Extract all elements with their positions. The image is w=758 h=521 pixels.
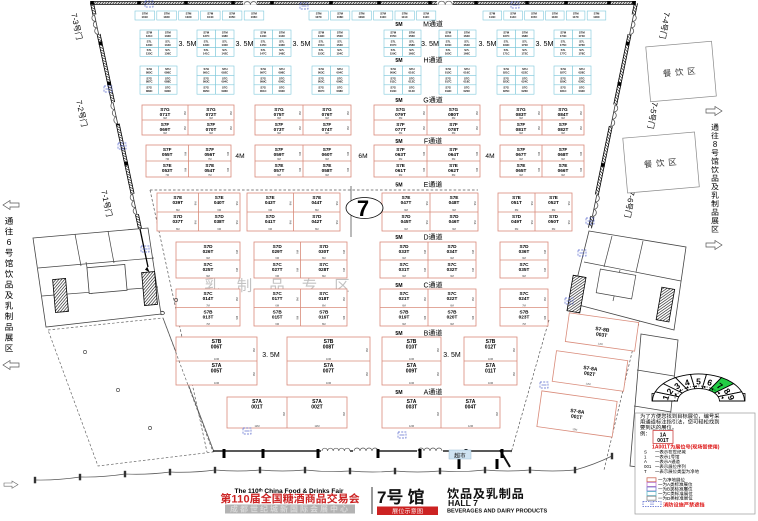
svg-text:9M: 9M xyxy=(537,152,541,156)
svg-text:M: M xyxy=(423,21,429,28)
svg-text:042T: 042T xyxy=(311,219,322,224)
svg-text:020C: 020C xyxy=(463,89,470,93)
svg-text:E: E xyxy=(424,182,429,189)
svg-text:9M: 9M xyxy=(183,126,187,130)
svg-text:10M: 10M xyxy=(326,357,331,361)
svg-text:3. 5M: 3. 5M xyxy=(479,39,497,48)
svg-text:6M: 6M xyxy=(325,157,329,161)
svg-text:6M: 6M xyxy=(325,116,329,120)
svg-text:6M: 6M xyxy=(561,131,565,135)
svg-text:017T: 017T xyxy=(272,296,283,301)
svg-text:6M: 6M xyxy=(402,274,406,278)
svg-text:022C: 022C xyxy=(521,70,528,74)
svg-text:5M: 5M xyxy=(395,390,402,396)
svg-text:007T: 007T xyxy=(323,369,334,375)
svg-text:9M: 9M xyxy=(346,168,350,172)
svg-text:067T: 067T xyxy=(516,152,527,157)
svg-text:142C: 142C xyxy=(221,52,228,56)
svg-text:12M: 12M xyxy=(585,382,591,387)
svg-text:094C: 094C xyxy=(221,80,228,84)
svg-text:9M: 9M xyxy=(365,348,369,352)
svg-text:113C: 113C xyxy=(489,15,496,19)
svg-text:9M: 9M xyxy=(226,152,230,156)
svg-text:013T: 013T xyxy=(203,315,214,320)
svg-text:A: A xyxy=(424,389,429,396)
svg-text:147C: 147C xyxy=(260,52,267,56)
svg-text:6M: 6M xyxy=(176,227,180,231)
svg-text:165C: 165C xyxy=(445,52,452,56)
svg-text:108C: 108C xyxy=(337,15,344,19)
svg-text:133C: 133C xyxy=(146,43,153,47)
svg-text:111C: 111C xyxy=(401,15,407,19)
svg-text:9M: 9M xyxy=(295,297,299,301)
svg-text:9M: 9M xyxy=(495,412,499,416)
svg-text:6: 6 xyxy=(7,237,12,247)
svg-text:002C: 002C xyxy=(278,89,285,93)
svg-text:6M: 6M xyxy=(277,131,281,135)
svg-text:9M: 9M xyxy=(342,316,346,320)
svg-text:022T: 022T xyxy=(447,296,458,301)
svg-text:018T: 018T xyxy=(318,296,329,301)
svg-text:087C: 087C xyxy=(146,80,153,84)
svg-text:062T: 062T xyxy=(448,168,459,173)
svg-text:9M: 9M xyxy=(543,268,547,272)
svg-text:044T: 044T xyxy=(311,200,322,205)
svg-text:096C: 096C xyxy=(221,89,228,93)
svg-text:6M: 6M xyxy=(450,256,454,260)
svg-text:9M: 9M xyxy=(512,372,516,376)
svg-text:063T: 063T xyxy=(395,152,406,157)
svg-text:092C: 092C xyxy=(221,70,228,74)
svg-text:6M: 6M xyxy=(452,131,456,135)
svg-text:170C: 170C xyxy=(521,43,528,47)
svg-text:5M: 5M xyxy=(395,22,402,28)
svg-text:117C: 117C xyxy=(572,15,579,19)
svg-text:9M: 9M xyxy=(229,126,233,130)
svg-text:C: C xyxy=(423,282,428,289)
svg-text:12M: 12M xyxy=(598,342,604,347)
svg-text:174C: 174C xyxy=(578,34,585,38)
svg-text:029T: 029T xyxy=(272,249,283,254)
svg-text:5M: 5M xyxy=(395,58,402,64)
svg-text:6M: 6M xyxy=(452,227,456,231)
svg-text:6M: 6M xyxy=(515,208,519,212)
svg-text:012C: 012C xyxy=(408,80,415,84)
svg-text:029C: 029C xyxy=(560,80,567,84)
svg-text:015T: 015T xyxy=(272,315,283,320)
svg-text:6M: 6M xyxy=(275,304,279,308)
svg-text:024C: 024C xyxy=(521,80,528,84)
svg-text:019C: 019C xyxy=(445,89,452,93)
svg-text:149C: 149C xyxy=(318,34,325,38)
svg-text:014C: 014C xyxy=(408,89,415,93)
svg-text:9M: 9M xyxy=(252,372,256,376)
svg-text:098C: 098C xyxy=(278,70,285,74)
svg-text:026T: 026T xyxy=(203,249,214,254)
svg-text:016T: 016T xyxy=(318,315,329,320)
svg-text:6M: 6M xyxy=(209,131,213,135)
svg-text:110: 110 xyxy=(231,494,249,506)
svg-text:6M: 6M xyxy=(322,322,326,326)
svg-text:5M: 5M xyxy=(395,283,402,289)
svg-text:116C: 116C xyxy=(552,15,559,19)
svg-text:6M: 6M xyxy=(315,208,319,212)
svg-text:10M: 10M xyxy=(214,357,219,361)
svg-text:9M: 9M xyxy=(537,168,541,172)
svg-text:161C: 161C xyxy=(445,34,452,38)
svg-text:9M: 9M xyxy=(567,221,571,225)
svg-text:The 110ᵗʰ China Food & Drinks: The 110ᵗʰ China Food & Drinks Fair xyxy=(234,488,343,495)
svg-text:9M: 9M xyxy=(346,111,350,115)
svg-text:9M: 9M xyxy=(298,168,302,172)
svg-text:9M: 9M xyxy=(335,202,339,206)
svg-text:011T: 011T xyxy=(485,369,496,375)
svg-text:156C: 156C xyxy=(408,34,415,38)
svg-text:146C: 146C xyxy=(278,43,285,47)
svg-text:6M: 6M xyxy=(522,256,526,260)
svg-text:030C: 030C xyxy=(578,80,585,84)
svg-text:3. 5M: 3. 5M xyxy=(262,352,280,359)
svg-text:021C: 021C xyxy=(503,70,510,74)
svg-text:028C: 028C xyxy=(578,70,585,74)
svg-text:157C: 157C xyxy=(390,43,397,47)
svg-text:056T: 056T xyxy=(204,152,215,157)
svg-text:118C: 118C xyxy=(593,15,600,19)
svg-text:013C: 013C xyxy=(390,89,397,93)
svg-text:5M: 5M xyxy=(395,139,402,145)
svg-text:168C: 168C xyxy=(521,34,528,38)
svg-text:9M: 9M xyxy=(471,297,475,301)
svg-text:3. 5M: 3. 5M xyxy=(293,39,311,48)
svg-text:023T: 023T xyxy=(519,315,530,320)
svg-text:014T: 014T xyxy=(203,296,214,301)
svg-text:3. 5M: 3. 5M xyxy=(179,39,197,48)
svg-text:6M: 6M xyxy=(217,208,221,212)
svg-text:6M: 6M xyxy=(402,256,406,260)
svg-text:7M: 7M xyxy=(522,304,526,308)
svg-text:9M: 9M xyxy=(436,348,440,352)
svg-text:7: 7 xyxy=(377,488,386,507)
svg-text:003T: 003T xyxy=(406,405,417,411)
svg-text:064T: 064T xyxy=(448,152,459,157)
svg-text:9M: 9M xyxy=(235,202,239,206)
svg-text:9M: 9M xyxy=(471,268,475,272)
svg-text:9M: 9M xyxy=(543,316,547,320)
svg-text:169C: 169C xyxy=(503,43,510,47)
svg-text:105C: 105C xyxy=(229,15,236,19)
svg-text:032C: 032C xyxy=(578,89,585,93)
svg-text:9M: 9M xyxy=(567,202,571,206)
svg-text:7M: 7M xyxy=(206,322,210,326)
svg-text:9M: 9M xyxy=(423,297,427,301)
svg-text:5: 5 xyxy=(696,376,701,386)
svg-text:015C: 015C xyxy=(445,70,452,74)
svg-text:B: B xyxy=(424,330,429,337)
svg-text:(: ( xyxy=(691,445,693,451)
svg-text:6M: 6M xyxy=(450,322,454,326)
svg-text:9M: 9M xyxy=(423,316,427,320)
svg-text:040T: 040T xyxy=(214,200,225,205)
svg-text:041T: 041T xyxy=(265,219,276,224)
svg-text:159C: 159C xyxy=(390,52,397,56)
svg-text:163C: 163C xyxy=(445,43,452,47)
svg-text:138C: 138C xyxy=(221,34,228,38)
svg-text:068T: 068T xyxy=(558,152,569,157)
svg-text:012T: 012T xyxy=(485,345,496,351)
svg-text:8: 8 xyxy=(713,140,717,149)
svg-text:143C: 143C xyxy=(260,34,267,38)
svg-text:001C: 001C xyxy=(260,89,267,93)
svg-text:9M: 9M xyxy=(425,221,429,225)
svg-text:6M: 6M xyxy=(206,274,210,278)
svg-text:6M: 6M xyxy=(315,227,319,231)
svg-text:9M: 9M xyxy=(183,111,187,115)
svg-text:005C: 005C xyxy=(318,80,325,84)
svg-text:028T: 028T xyxy=(318,267,329,272)
svg-text:9M: 9M xyxy=(473,221,477,225)
svg-text:H: H xyxy=(423,57,428,64)
svg-text:057T: 057T xyxy=(274,168,285,173)
svg-text:132C: 132C xyxy=(164,34,171,38)
svg-text:6M: 6M xyxy=(399,131,403,135)
svg-text:175C: 175C xyxy=(560,43,567,47)
svg-text:9M: 9M xyxy=(422,152,426,156)
svg-text:054T: 054T xyxy=(204,168,215,173)
svg-text:6M: 6M xyxy=(325,173,329,177)
svg-text:9M: 9M xyxy=(579,168,583,172)
svg-text:090C: 090C xyxy=(164,89,171,93)
svg-text:9M: 9M xyxy=(422,126,426,130)
svg-text:036T: 036T xyxy=(519,249,530,254)
svg-text:6M: 6M xyxy=(561,173,565,177)
svg-text:9M: 9M xyxy=(229,111,233,115)
svg-text:086C: 086C xyxy=(164,70,171,74)
svg-text:9M: 9M xyxy=(543,297,547,301)
svg-text:6M: 6M xyxy=(450,304,454,308)
svg-text:9M: 9M xyxy=(530,221,534,225)
svg-text:145C: 145C xyxy=(260,43,267,47)
svg-text:049T: 049T xyxy=(511,219,522,224)
svg-text:104C: 104C xyxy=(207,15,214,19)
svg-text:139C: 139C xyxy=(203,43,210,47)
svg-text:3. 5M: 3. 5M xyxy=(236,39,254,48)
svg-text:6M: 6M xyxy=(217,227,221,231)
svg-text:HALL 7: HALL 7 xyxy=(448,498,478,508)
svg-text:9M: 9M xyxy=(473,202,477,206)
svg-text:6M: 6M xyxy=(515,227,519,231)
svg-text:173C: 173C xyxy=(560,34,567,38)
svg-text:6M: 6M xyxy=(277,157,281,161)
svg-text:6M: 6M xyxy=(275,322,279,326)
svg-text:106C: 106C xyxy=(251,15,258,19)
svg-text:011C: 011C xyxy=(390,80,397,84)
svg-text:089C: 089C xyxy=(146,89,153,93)
svg-text:9M: 9M xyxy=(183,152,187,156)
svg-text:046T: 046T xyxy=(449,219,460,224)
svg-text:048T: 048T xyxy=(449,200,460,205)
svg-text:A: A xyxy=(668,459,671,464)
svg-text:6M: 6M xyxy=(277,173,281,177)
svg-text:060T: 060T xyxy=(322,152,333,157)
svg-text:131C: 131C xyxy=(146,34,153,38)
svg-text:034T: 034T xyxy=(447,249,458,254)
svg-text:10M: 10M xyxy=(409,381,414,385)
svg-text:061T: 061T xyxy=(395,168,406,173)
svg-text:088C: 088C xyxy=(164,80,171,84)
svg-text:9M: 9M xyxy=(252,348,256,352)
svg-text:177C: 177C xyxy=(560,52,567,56)
svg-text:9M: 9M xyxy=(579,111,583,115)
svg-text:5M: 5M xyxy=(395,98,402,104)
svg-text:10M: 10M xyxy=(326,381,331,385)
svg-text:7M: 7M xyxy=(206,304,210,308)
svg-text:150C: 150C xyxy=(336,34,343,38)
svg-text:10M: 10M xyxy=(488,381,493,385)
svg-text:037T: 037T xyxy=(172,219,183,224)
svg-text:025T: 025T xyxy=(203,267,214,272)
svg-text:3. 5M: 3. 5M xyxy=(421,39,439,48)
svg-text:6M: 6M xyxy=(322,304,326,308)
svg-text:031T: 031T xyxy=(399,267,410,272)
svg-text:065T: 065T xyxy=(516,168,527,173)
svg-text:5M: 5M xyxy=(395,331,402,337)
svg-text:6M: 6M xyxy=(452,116,456,120)
svg-text:1A001T: 1A001T xyxy=(652,445,671,451)
svg-text:7M: 7M xyxy=(165,173,169,177)
svg-text:164C: 164C xyxy=(463,43,470,47)
svg-text:6M: 6M xyxy=(452,208,456,212)
svg-text:114C: 114C xyxy=(510,15,517,19)
svg-text:010C: 010C xyxy=(408,70,415,74)
svg-text:148C: 148C xyxy=(278,52,285,56)
svg-text:9M: 9M xyxy=(298,111,302,115)
svg-text:6M: 6M xyxy=(268,227,272,231)
svg-text:G: G xyxy=(423,97,428,104)
svg-text:171C: 171C xyxy=(503,52,510,56)
svg-text:160C: 160C xyxy=(408,52,415,56)
svg-text:9M: 9M xyxy=(235,316,239,320)
svg-text:9M: 9M xyxy=(295,268,299,272)
svg-text:9M: 9M xyxy=(298,126,302,130)
svg-text:9M: 9M xyxy=(346,126,350,130)
svg-text:9M: 9M xyxy=(512,348,516,352)
svg-text:9M: 9M xyxy=(295,316,299,320)
svg-text:9M: 9M xyxy=(423,250,427,254)
svg-text:9M: 9M xyxy=(298,152,302,156)
svg-text:166C: 166C xyxy=(463,52,470,56)
svg-text:032T: 032T xyxy=(447,267,458,272)
svg-text:151C: 151C xyxy=(318,43,325,47)
svg-text:6M: 6M xyxy=(561,116,565,120)
svg-text:110C: 110C xyxy=(380,15,387,19)
svg-text:9M: 9M xyxy=(235,221,239,225)
svg-text:9M: 9M xyxy=(288,202,292,206)
svg-text:6M: 6M xyxy=(519,131,523,135)
svg-text:178C: 178C xyxy=(578,52,585,56)
svg-text:109C: 109C xyxy=(358,15,365,19)
svg-text:003C: 003C xyxy=(318,70,325,74)
svg-text:023C: 023C xyxy=(503,80,510,84)
svg-text:6M: 6M xyxy=(402,322,406,326)
svg-text:9M: 9M xyxy=(288,221,292,225)
svg-text:055T: 055T xyxy=(162,152,173,157)
svg-text:035T: 035T xyxy=(519,267,530,272)
svg-text:027T: 027T xyxy=(272,267,283,272)
svg-text:6M: 6M xyxy=(402,304,406,308)
svg-text:004C: 004C xyxy=(336,70,343,74)
svg-text:9M: 9M xyxy=(282,412,286,416)
svg-text:001T: 001T xyxy=(251,405,262,411)
svg-text:017C: 017C xyxy=(445,80,452,84)
svg-text:9M: 9M xyxy=(342,250,346,254)
svg-text:9M: 9M xyxy=(422,111,426,115)
svg-text:093C: 093C xyxy=(203,80,210,84)
svg-text:103C: 103C xyxy=(185,15,192,19)
svg-text:107C: 107C xyxy=(315,15,322,19)
svg-text:12M: 12M xyxy=(314,424,319,428)
svg-text:6M: 6M xyxy=(404,208,408,212)
svg-text:053T: 053T xyxy=(162,168,173,173)
svg-text:137C: 137C xyxy=(203,34,210,38)
svg-text:024T: 024T xyxy=(519,296,530,301)
svg-text:9M: 9M xyxy=(579,152,583,156)
svg-text:6M: 6M xyxy=(268,208,272,212)
svg-text:144C: 144C xyxy=(278,34,285,38)
svg-text:001T: 001T xyxy=(657,438,668,444)
svg-text:6M: 6M xyxy=(275,256,279,260)
svg-text:F: F xyxy=(424,138,428,145)
svg-text:153C: 153C xyxy=(318,52,325,56)
svg-text:6M: 6M xyxy=(519,157,523,161)
svg-text:9M: 9M xyxy=(530,202,534,206)
svg-text:9M: 9M xyxy=(183,168,187,172)
svg-text:6M: 6M xyxy=(399,116,403,120)
svg-text:): ) xyxy=(718,445,720,451)
svg-text:097C: 097C xyxy=(260,70,267,74)
svg-text:008T: 008T xyxy=(323,345,334,351)
svg-text:6M: 6M xyxy=(399,173,403,177)
svg-text:6M: 6M xyxy=(325,131,329,135)
svg-text:058T: 058T xyxy=(322,168,333,173)
svg-text:018C: 018C xyxy=(463,80,470,84)
svg-text:085C: 085C xyxy=(146,70,153,74)
svg-text:5M: 5M xyxy=(395,182,402,188)
svg-text:9M: 9M xyxy=(537,111,541,115)
svg-text:027C: 027C xyxy=(560,70,567,74)
svg-text:9M: 9M xyxy=(235,250,239,254)
svg-text:9M: 9M xyxy=(346,152,350,156)
svg-text:9M: 9M xyxy=(193,221,197,225)
svg-text:6M: 6M xyxy=(358,153,367,160)
svg-text:9M: 9M xyxy=(226,168,230,172)
svg-text:008C: 008C xyxy=(336,89,343,93)
svg-text:9M: 9M xyxy=(193,202,197,206)
svg-text:4M: 4M xyxy=(485,153,494,160)
svg-text:9M: 9M xyxy=(235,268,239,272)
svg-text:115C: 115C xyxy=(531,15,538,19)
svg-text:3. 5M: 3. 5M xyxy=(536,39,554,48)
svg-text:047T: 047T xyxy=(401,200,412,205)
svg-text:5M: 5M xyxy=(395,235,402,241)
svg-text:9M: 9M xyxy=(295,250,299,254)
svg-text:9M: 9M xyxy=(537,126,541,130)
svg-text:009T: 009T xyxy=(406,369,417,375)
svg-text:9M: 9M xyxy=(475,152,479,156)
svg-text:12M: 12M xyxy=(468,424,473,428)
svg-text:6M: 6M xyxy=(322,274,326,278)
svg-text:021T: 021T xyxy=(399,296,410,301)
svg-text:D: D xyxy=(423,234,428,241)
